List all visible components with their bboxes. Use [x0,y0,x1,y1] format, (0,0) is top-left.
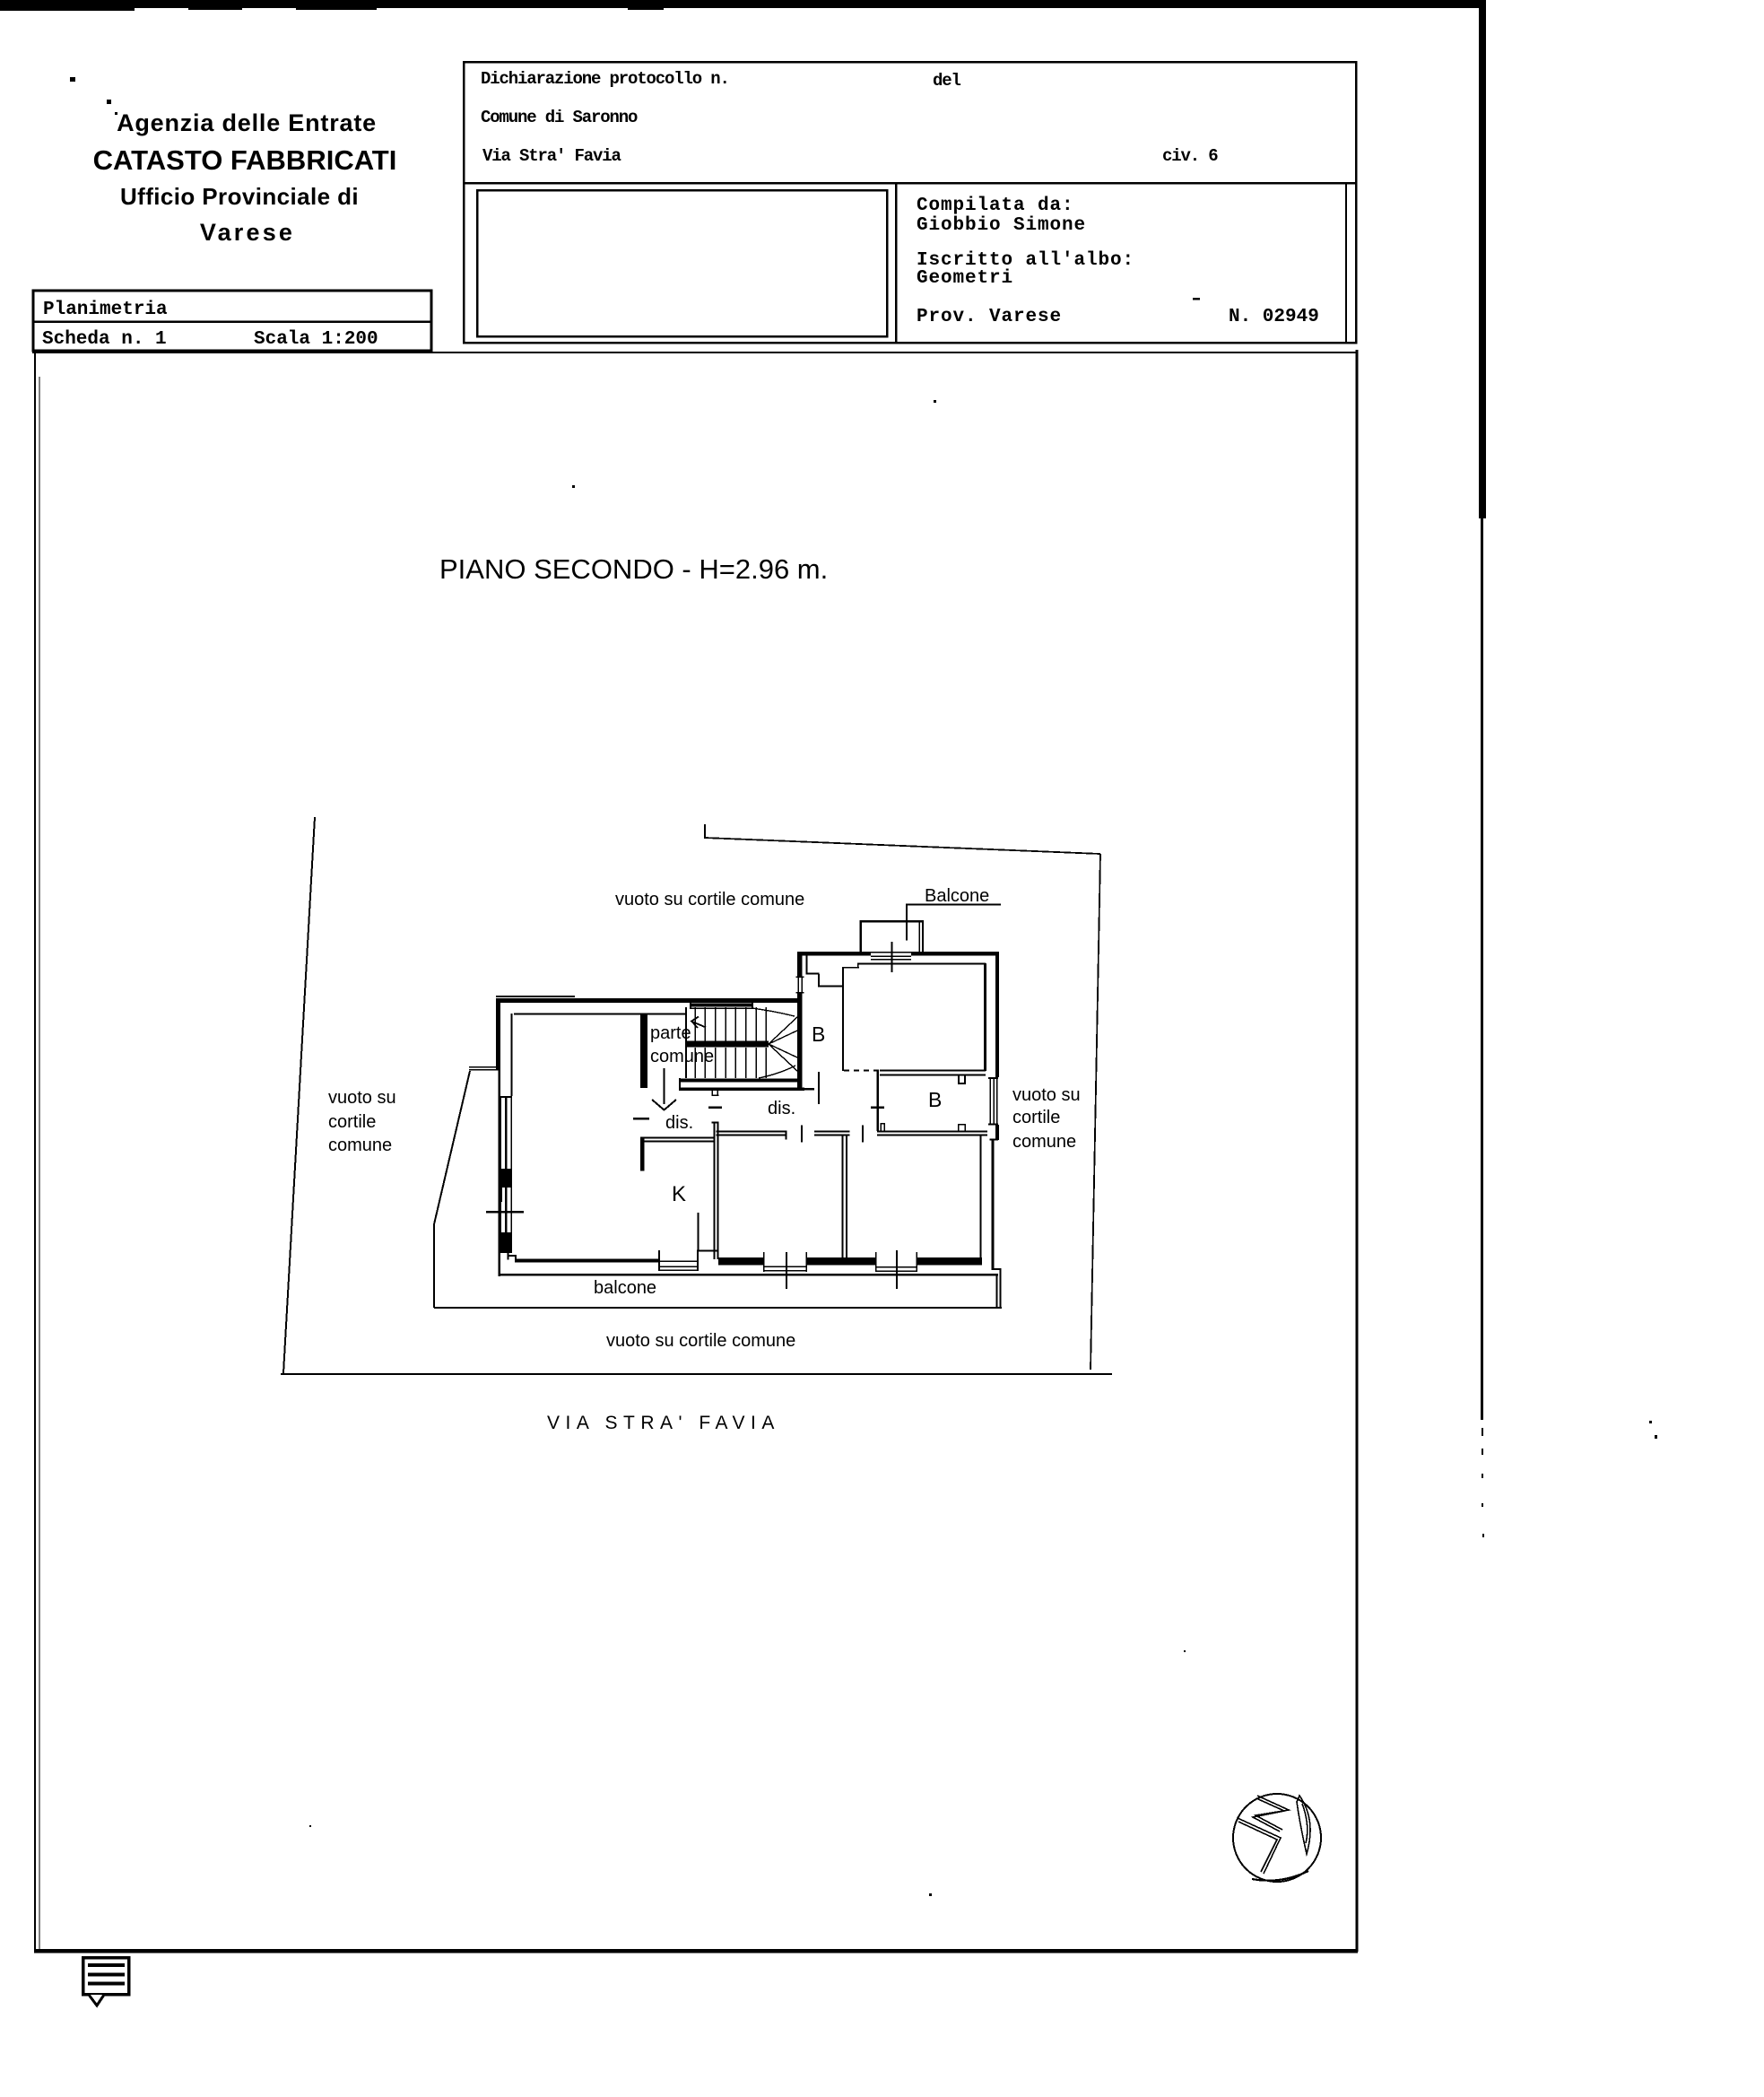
svg-text:vuoto su cortile comune: vuoto su cortile comune [606,1331,795,1351]
svg-text:parte: parte [650,1023,691,1043]
svg-text:Scheda n. 1: Scheda n. 1 [42,329,167,350]
svg-text:Giobbio Simone: Giobbio Simone [917,215,1086,236]
svg-text:Via Stra' Favia: Via Stra' Favia [482,146,621,166]
svg-text:Prov. Varese: Prov. Varese [917,307,1062,327]
svg-text:vuoto su cortile comune: vuoto su cortile comune [615,890,804,909]
svg-text:comune: comune [650,1047,714,1066]
svg-text:VIA STRA' FAVIA: VIA STRA' FAVIA [547,1413,780,1433]
svg-text:comune: comune [328,1136,392,1155]
svg-text:cortile: cortile [1012,1108,1060,1127]
svg-text:B: B [812,1022,825,1046]
svg-text:civ. 6: civ. 6 [1162,146,1218,166]
svg-text:dis.: dis. [665,1113,693,1133]
svg-text:B: B [928,1088,942,1111]
svg-text:Dichiarazione protocollo n.: Dichiarazione protocollo n. [481,69,729,89]
svg-text:PIANO SECONDO - H=2.96 m.: PIANO SECONDO - H=2.96 m. [439,553,828,585]
svg-text:Planimetria: Planimetria [43,300,168,320]
svg-text:Ufficio Provinciale di: Ufficio Provinciale di [120,183,359,210]
svg-text:CATASTO FABBRICATI: CATASTO FABBRICATI [93,144,397,176]
svg-text:cortile: cortile [328,1112,376,1132]
svg-text:comune: comune [1012,1132,1076,1152]
svg-text:del: del [933,71,961,91]
svg-text:Compilata da:: Compilata da: [917,196,1074,216]
svg-text:Geometri: Geometri [917,268,1013,289]
svg-text:vuoto su: vuoto su [328,1088,396,1108]
svg-text:Balcone: Balcone [925,886,989,906]
svg-text:Agenzia delle Entrate: Agenzia delle Entrate [117,109,377,136]
svg-text:K: K [672,1182,686,1206]
svg-text:Comune di Saronno: Comune di Saronno [481,108,638,127]
svg-text:dis.: dis. [768,1099,795,1118]
svg-text:N. 02949: N. 02949 [1229,307,1319,327]
svg-text:balcone: balcone [594,1278,656,1298]
svg-text:vuoto su: vuoto su [1012,1085,1081,1105]
svg-text:Scala 1:200: Scala 1:200 [254,329,378,350]
svg-text:Varese: Varese [200,219,295,246]
